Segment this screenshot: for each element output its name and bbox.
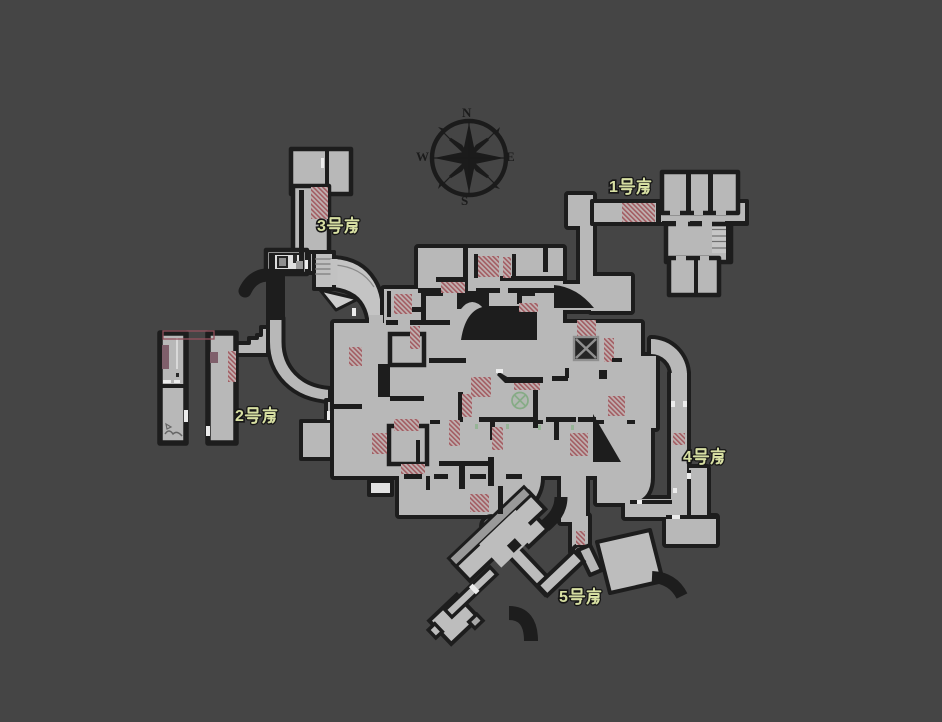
- svg-text:W: W: [416, 149, 429, 164]
- svg-text:S: S: [461, 193, 468, 208]
- svg-text:5: 5: [559, 589, 568, 606]
- svg-text:2: 2: [235, 408, 244, 425]
- svg-text:E: E: [506, 149, 515, 164]
- svg-text:3: 3: [317, 218, 326, 235]
- svg-text:N: N: [462, 105, 472, 120]
- svg-text:4: 4: [683, 449, 692, 466]
- svg-text:1: 1: [609, 179, 618, 196]
